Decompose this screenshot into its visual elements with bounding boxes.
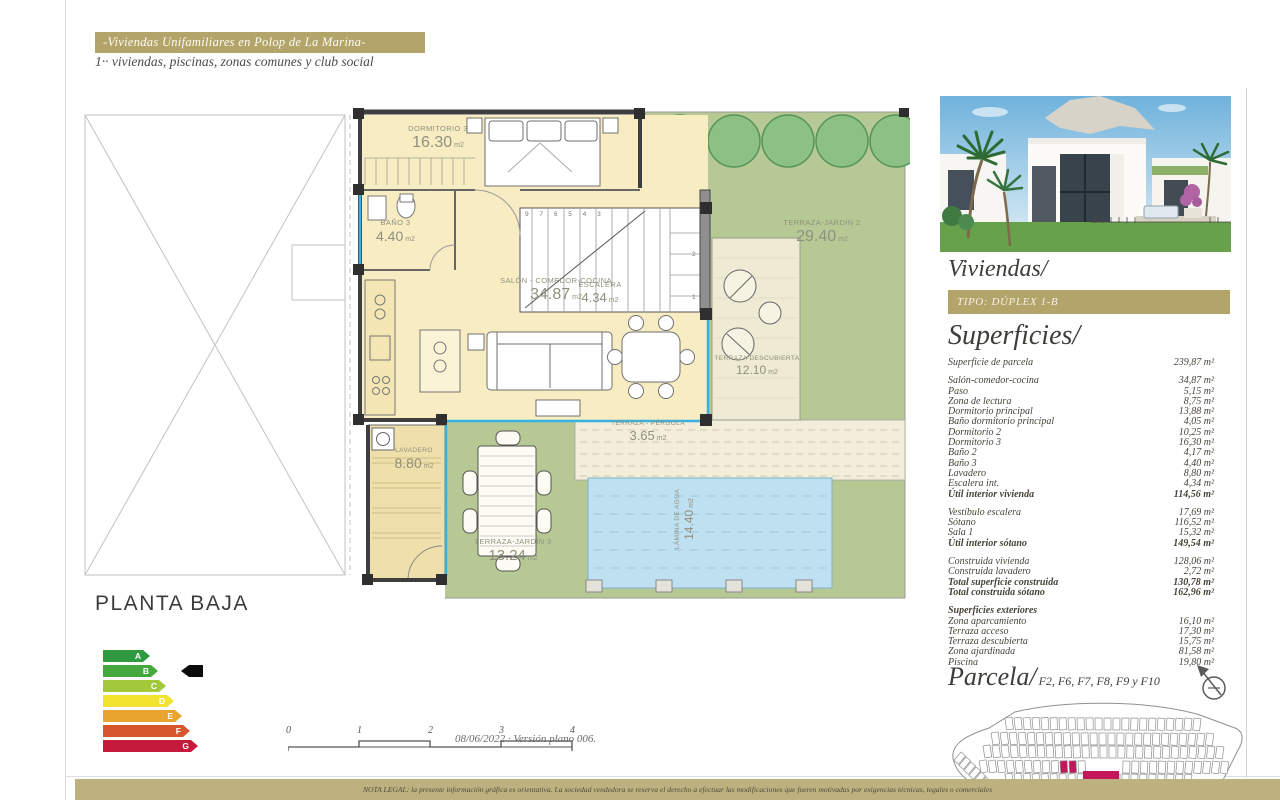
superficies-value: 114,56 m² (1174, 490, 1214, 500)
energy-grade-letter: B (143, 666, 149, 676)
superficies-value: 239,87 m² (1174, 358, 1214, 368)
viviendas-title: Viviendas/ (948, 256, 1048, 283)
superficies-row: Baño 34,40 m² (948, 459, 1214, 469)
villa-photo (940, 96, 1231, 252)
energy-grade-letter: D (159, 696, 165, 706)
parcela-title: Parcela/ (948, 662, 1037, 691)
superficies-label: Útil interior sótano (948, 539, 1027, 549)
room-label-terraza-jardin-3: TERRAZA-JARDÍN 3 13.24m2 (433, 537, 593, 564)
superficies-row: Útil interior vivienda114,56 m² (948, 490, 1214, 500)
room-label-terraza-jardin-2: TERRAZA-JARDÍN 2 29.40m2 (742, 218, 902, 246)
energy-grade-row-g: G (103, 740, 273, 752)
energy-grade-letter: E (167, 711, 173, 721)
superficies-title: Superficies/ (948, 320, 1080, 352)
superficies-row: Superficie de parcela239,87 m² (948, 358, 1214, 368)
room-label-escalera: ESCALERA 4.34m2 (540, 280, 660, 305)
project-subtitle: 1·· viviendas, piscinas, zonas comunes y… (95, 54, 374, 70)
energy-grade-row-a: A (103, 650, 273, 662)
parcela-heading: Parcela/F2, F6, F7, F8, F9 y F10 (948, 662, 1160, 692)
energy-grade-letter: C (151, 681, 157, 691)
floor-plan: DORMITORIO 3 16.30m2 BAÑO 3 4.40m2 SALÓN… (70, 108, 910, 600)
room-label-terraza-descubierta: TERRAZA DESCUBIERTA 12.10m2 (707, 355, 807, 377)
room-label-lavadero: LAVADERO 8.80m2 (364, 447, 464, 471)
project-title-banner: -Viviendas Unifamiliares en Polop de La … (95, 32, 425, 53)
superficies-row: Zona ajardinada81,58 m² (948, 647, 1214, 657)
scale-tick: 0 (286, 725, 291, 736)
energy-grade-letter: A (135, 651, 141, 661)
superficies-label: Útil interior vivienda (948, 490, 1034, 500)
stair-step-number-2: 2 (692, 251, 696, 258)
superficies-row: Salón-comedor-cocina34,87 m² (948, 376, 1214, 386)
superficies-list: Superficie de parcela239,87 m²Salón-come… (948, 358, 1214, 676)
plan-version-caption: 08/06/2022 · Versión plano 006. (455, 733, 596, 745)
energy-grade-row-c: C (103, 680, 273, 692)
plan-sheet: -Viviendas Unifamiliares en Polop de La … (0, 0, 1280, 800)
superficies-value: 149,54 m² (1173, 539, 1214, 549)
energy-grade-row-f: F (103, 725, 273, 737)
superficies-row: Sótano116,52 m² (948, 518, 1214, 528)
floor-plan-drawing (70, 108, 910, 600)
parcela-codes: F2, F6, F7, F8, F9 y F10 (1039, 674, 1160, 688)
scale-tick: 2 (428, 725, 433, 736)
stair-step-number-1: 1 (692, 294, 696, 301)
superficies-label: Superficie de parcela (948, 358, 1033, 368)
legal-note: NOTA LEGAL: la presente información gráf… (363, 785, 992, 794)
sidebar-right-line (1246, 88, 1247, 778)
scale-tick: 1 (357, 725, 362, 736)
superficies-label: Total construida sótano (948, 588, 1045, 598)
legal-footer: NOTA LEGAL: la presente información gráf… (75, 779, 1280, 800)
energy-rating-chart: ABCDEFG (103, 650, 273, 760)
room-label-terraza-pergola: TERRAZA - PÉRGOLA 3.65m2 (578, 420, 718, 443)
plan-title: PLANTA BAJA (95, 592, 249, 616)
room-label-dormitorio-3: DORMITORIO 3 16.30m2 (358, 124, 518, 152)
superficies-value: 162,96 m² (1173, 588, 1214, 598)
stair-step-numbers: 9 7 6 5 4 3 (525, 211, 601, 218)
superficies-row: Baño 24,17 m² (948, 448, 1214, 458)
energy-grade-letter: F (176, 726, 181, 736)
left-frame-line (65, 0, 66, 800)
superficies-row: Dormitorio 316,30 m² (948, 438, 1214, 448)
superficies-row: Total construida sótano162,96 m² (948, 588, 1214, 598)
room-label-bano-3: BAÑO 3 4.40m2 (348, 218, 443, 244)
room-label-lamina-de-agua: LÁMINA DE AGUA 14.40m2 (674, 459, 696, 579)
energy-grade-row-d: D (103, 695, 273, 707)
tipo-banner: TIPO: DÚPLEX 1-B (948, 290, 1230, 314)
superficies-row: Útil interior sótano149,54 m² (948, 539, 1214, 549)
energy-grade-row-e: E (103, 710, 273, 722)
superficies-row: Superficies exteriores (948, 606, 1214, 616)
superficies-label: Superficies exteriores (948, 606, 1037, 616)
energy-grade-letter: G (182, 741, 189, 751)
